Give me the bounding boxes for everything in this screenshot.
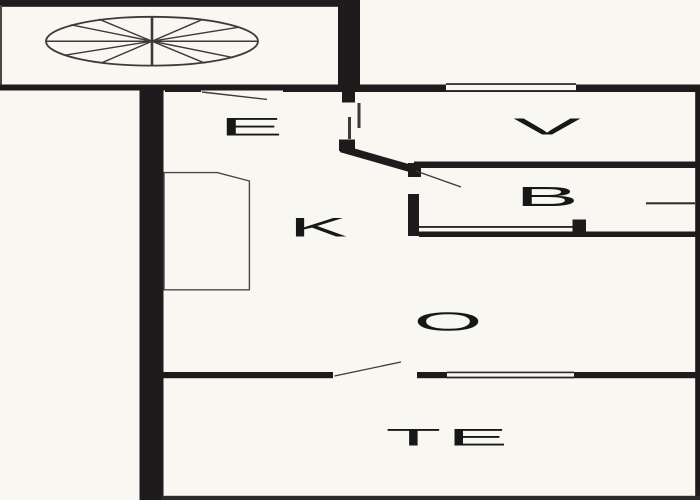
svg-text:E: E — [219, 113, 283, 141]
svg-text:B: B — [515, 181, 579, 212]
svg-text:O: O — [413, 307, 482, 336]
svg-text:TE: TE — [385, 425, 513, 452]
svg-text:V: V — [513, 113, 581, 139]
svg-text:K: K — [289, 212, 348, 242]
